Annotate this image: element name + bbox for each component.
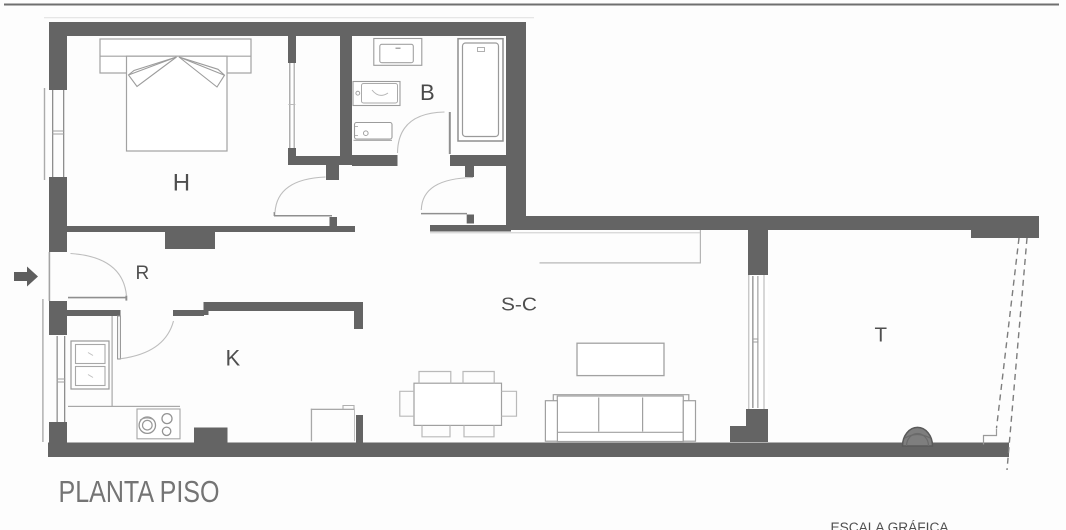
svg-text:PLANTA PISO: PLANTA PISO: [59, 474, 220, 509]
svg-text:R: R: [136, 263, 150, 284]
svg-text:ESCALA GRÁFICA: ESCALA GRÁFICA: [831, 520, 949, 530]
svg-text:S-C: S-C: [501, 294, 537, 315]
svg-text:B: B: [420, 80, 435, 105]
svg-text:K: K: [226, 346, 241, 371]
svg-text:H: H: [173, 169, 190, 196]
svg-text:T: T: [875, 324, 888, 347]
